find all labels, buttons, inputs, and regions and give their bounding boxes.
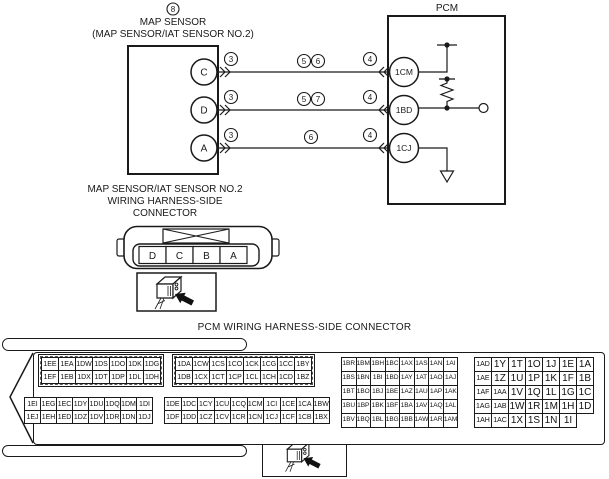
pin-1DX: 1DX — [76, 371, 93, 384]
pin-1CF: 1CF — [280, 411, 297, 424]
pin-1CO: 1CO — [227, 358, 244, 371]
ref-number: 3 — [229, 55, 234, 64]
ref-number: 4 — [368, 93, 373, 102]
pin-1BY: 1BY — [295, 358, 312, 371]
pin-1EC: 1EC — [57, 398, 73, 411]
sensor-subtitle: (MAP SENSOR/IAT SENSOR NO.2) — [92, 29, 254, 40]
pin-1CM: 1CM — [247, 398, 264, 411]
pin-1BS: 1BS — [342, 372, 357, 386]
pin-1CU: 1CU — [214, 398, 231, 411]
pin-1CD: 1CD — [278, 371, 295, 384]
pin-1CR: 1CR — [231, 411, 248, 424]
pin-1CV: 1CV — [214, 411, 231, 424]
pin-1CK: 1CK — [244, 358, 261, 371]
pin-1B: 1B — [577, 372, 594, 386]
pin-1EG: 1EG — [41, 398, 57, 411]
pin-block-2: 1DA1CW1CS1CO1CK1CG1CC1BY1DB1CX1CT1CP1CL1… — [172, 354, 315, 387]
pin-1AN: 1AN — [429, 358, 444, 372]
ref-number: 4 — [368, 55, 373, 64]
pin-1DL: 1DL — [127, 371, 144, 384]
pin-1CN: 1CN — [247, 411, 264, 424]
pin-1AQ: 1AQ — [429, 400, 444, 414]
pin-1AY: 1AY — [400, 372, 415, 386]
pin-1CT: 1CT — [210, 371, 227, 384]
pin-1CB: 1CB — [297, 411, 314, 424]
open-terminal-icon — [479, 104, 488, 113]
pin-1DQ: 1DQ — [105, 398, 121, 411]
pin-1EA: 1EA — [59, 358, 76, 371]
pin-1U: 1U — [509, 372, 526, 386]
pin-1DG: 1DG — [144, 358, 161, 371]
pin-1DC: 1DC — [181, 398, 198, 411]
pin-1BX: 1BX — [313, 411, 330, 424]
pin-1BE: 1BE — [385, 386, 400, 400]
pin-1BC: 1BC — [385, 358, 400, 372]
pin-1AC: 1AC — [492, 414, 509, 428]
sensor-ref-number: 8 — [171, 5, 176, 14]
wire-row-d-1bd: D 1BD 3 5 7 4 — [191, 91, 419, 125]
pin-1F: 1F — [560, 372, 577, 386]
pin-1DN: 1DN — [121, 411, 137, 424]
pin-1Q: 1Q — [526, 386, 543, 400]
pin-1DE: 1DE — [165, 398, 182, 411]
pin-1DK: 1DK — [127, 358, 144, 371]
ref-number: 5 — [302, 57, 307, 66]
pin-1EB: 1EB — [59, 371, 76, 384]
pin-1L: 1L — [543, 386, 560, 400]
pin-1AU: 1AU — [414, 386, 429, 400]
pin-1AS: 1AS — [414, 358, 429, 372]
pin-block-6: 1AD1Y1T1O1J1E1A1AE1Z1U1P1K1F1B1AF1AA1V1Q… — [474, 357, 594, 428]
pin-1ED: 1ED — [57, 411, 73, 424]
pin-1EH: 1EH — [41, 411, 57, 424]
pin-1BU: 1BU — [342, 400, 357, 414]
pin-1J: 1J — [543, 358, 560, 372]
pin-1CJ: 1CJ — [264, 411, 281, 424]
pin-1DD: 1DD — [181, 411, 198, 424]
pin-1DJ: 1DJ — [137, 411, 153, 424]
sensor-terminal-label: A — [201, 144, 208, 155]
pin-1DA: 1DA — [176, 358, 193, 371]
pin-block-3: 1EI1EG1EC1DY1DU1DQ1DM1DI1EJ1EH1ED1DZ1DV1… — [24, 397, 153, 424]
ref-number: 6 — [316, 57, 321, 66]
connector-top-rail — [2, 338, 247, 351]
pin-1BR: 1BR — [342, 358, 357, 372]
pin-1EI: 1EI — [25, 398, 41, 411]
pin-1DB: 1DB — [176, 371, 193, 384]
pin-1N: 1N — [543, 414, 560, 428]
pin-1CC: 1CC — [278, 358, 295, 371]
pin-1AO: 1AO — [429, 372, 444, 386]
pin-1AI: 1AI — [443, 358, 458, 372]
pin-1DF: 1DF — [165, 411, 182, 424]
pin-1AR: 1AR — [429, 414, 444, 428]
ref-number: 7 — [316, 95, 321, 104]
pin-1AK: 1AK — [443, 386, 458, 400]
pin-1M: 1M — [543, 400, 560, 414]
pin-grid: 1EE1EA1DW1DS1DO1DK1DG1EF1EB1DX1DT1DP1DL1… — [41, 357, 161, 384]
pin-1AA: 1AA — [492, 386, 509, 400]
pin-1X: 1X — [509, 414, 526, 428]
pcm-terminal-label: 1CM — [395, 67, 413, 77]
pin-grid: 1EI1EG1EC1DY1DU1DQ1DM1DI1EJ1EH1ED1DZ1DV1… — [24, 397, 153, 424]
pin-block-4: 1DE1DC1CY1CU1CQ1CM1CI1CE1CA1BW1DF1DD1CZ1… — [164, 397, 330, 424]
pin-1G: 1G — [560, 386, 577, 400]
ref-number: 4 — [368, 131, 373, 140]
pin-1DS: 1DS — [93, 358, 110, 371]
pin-1CP: 1CP — [227, 371, 244, 384]
pin-1CI: 1CI — [264, 398, 281, 411]
pcm-terminal-label: 1BD — [396, 105, 413, 115]
pin-1DW: 1DW — [76, 358, 93, 371]
pin-1AM: 1AM — [443, 414, 458, 428]
pin-1R: 1R — [526, 400, 543, 414]
pcm-title: PCM — [436, 3, 458, 14]
pin-1AP: 1AP — [429, 386, 444, 400]
pin-1DY: 1DY — [73, 398, 89, 411]
pin-1AB: 1AB — [492, 400, 509, 414]
pin-1H: 1H — [560, 400, 577, 414]
pin-1AJ: 1AJ — [443, 372, 458, 386]
pin-1O: 1O — [526, 358, 543, 372]
wire-row-a-1cj: A 1CJ 3 6 4 — [191, 129, 419, 163]
pin-1T: 1T — [509, 358, 526, 372]
pin-block-5: 1BR1BM1BH1BC1AX1AS1AN1AI1BS1BN1BI1BD1AY1… — [341, 357, 458, 428]
connector-3d-icon — [286, 445, 321, 472]
sensor-terminal-label: C — [200, 68, 207, 79]
pin-1BB: 1BB — [400, 414, 415, 428]
icon-frame — [263, 445, 343, 474]
pin-1D: 1D — [577, 400, 594, 414]
pin-1BD: 1BD — [385, 372, 400, 386]
pin-1AZ: 1AZ — [400, 386, 415, 400]
pin-1BT: 1BT — [342, 386, 357, 400]
sensor-title: MAP SENSOR — [140, 17, 207, 28]
pin-1CQ: 1CQ — [231, 398, 248, 411]
pin-1DV: 1DV — [89, 411, 105, 424]
sensor-connector-label-2: WIRING HARNESS-SIDE — [107, 196, 222, 207]
pin-1AL: 1AL — [443, 400, 458, 414]
pin-1CH: 1CH — [261, 371, 278, 384]
pin-1BA: 1BA — [400, 400, 415, 414]
pin-1CL: 1CL — [244, 371, 261, 384]
pin-1BM: 1BM — [356, 358, 371, 372]
pin-1S: 1S — [526, 414, 543, 428]
wire-row-c-1cm: C 1CM 3 5 6 4 — [191, 53, 419, 87]
pin-1CG: 1CG — [261, 358, 278, 371]
sensor-terminal-label: D — [200, 106, 207, 117]
pcm-connector-icon-box — [262, 444, 347, 477]
pin-1BV: 1BV — [342, 414, 357, 428]
junction-dot — [444, 42, 449, 47]
pin-1AE: 1AE — [475, 372, 492, 386]
pin-1BN: 1BN — [356, 372, 371, 386]
pin-1I: 1I — [560, 414, 577, 428]
pin-1CZ: 1CZ — [198, 411, 215, 424]
pin-1CE: 1CE — [280, 398, 297, 411]
pin-1AV: 1AV — [414, 400, 429, 414]
pin-1V: 1V — [509, 386, 526, 400]
pin-1K: 1K — [543, 372, 560, 386]
pin-1DP: 1DP — [110, 371, 127, 384]
pin-1AX: 1AX — [400, 358, 415, 372]
pin-1DO: 1DO — [110, 358, 127, 371]
pcm-terminal-label: 1CJ — [396, 143, 411, 153]
connector-bottom-rail — [2, 445, 247, 457]
pin-1AH: 1AH — [475, 414, 492, 428]
pin-1EE: 1EE — [42, 358, 59, 371]
sensor-connector-label-1: MAP SENSOR/IAT SENSOR NO.2 — [87, 184, 242, 195]
pin-1DU: 1DU — [89, 398, 105, 411]
pin-1A: 1A — [577, 358, 594, 372]
pin-label: A — [230, 251, 237, 262]
pin-1BF: 1BF — [385, 400, 400, 414]
pin-label: B — [203, 251, 210, 262]
pin-1BH: 1BH — [371, 358, 386, 372]
pin-1C: 1C — [577, 386, 594, 400]
pin-1AW: 1AW — [414, 414, 429, 428]
pin-1BP: 1BP — [356, 400, 371, 414]
pin-1W: 1W — [509, 400, 526, 414]
pin-1Y: 1Y — [492, 358, 509, 372]
ref-number: 3 — [229, 93, 234, 102]
pin-1BW: 1BW — [313, 398, 330, 411]
pin-1EF: 1EF — [42, 371, 59, 384]
pin-1EJ: 1EJ — [25, 411, 41, 424]
pin-grid: 1DA1CW1CS1CO1CK1CG1CC1BY1DB1CX1CT1CP1CL1… — [175, 357, 312, 384]
pin-1E: 1E — [560, 358, 577, 372]
pin-1BI: 1BI — [371, 372, 386, 386]
pin-label: D — [149, 251, 156, 262]
pin-1AD: 1AD — [475, 358, 492, 372]
pin-1DM: 1DM — [121, 398, 137, 411]
wiring-diagram-page: { "colors": { "line": "#1a1a1a", "backgr… — [0, 0, 609, 478]
pin-1AG: 1AG — [475, 400, 492, 414]
pin-1CS: 1CS — [210, 358, 227, 371]
sensor-connector-label-3: CONNECTOR — [133, 208, 197, 219]
pin-1BJ: 1BJ — [371, 386, 386, 400]
pcm-connector-title: PCM WIRING HARNESS-SIDE CONNECTOR — [0, 322, 609, 333]
sensor-connector-drawing: D C B A — [117, 227, 279, 269]
pin-1BO: 1BO — [356, 386, 371, 400]
pin-1BQ: 1BQ — [356, 414, 371, 428]
pin-1BL: 1BL — [371, 414, 386, 428]
pin-1CX: 1CX — [193, 371, 210, 384]
pin-1BG: 1BG — [385, 414, 400, 428]
pin-1P: 1P — [526, 372, 543, 386]
pin-1CA: 1CA — [297, 398, 314, 411]
pin-grid: 1AD1Y1T1O1J1E1A1AE1Z1U1P1K1F1B1AF1AA1V1Q… — [474, 357, 594, 428]
pin-grid: 1DE1DC1CY1CU1CQ1CM1CI1CE1CA1BW1DF1DD1CZ1… — [164, 397, 330, 424]
pin-1CY: 1CY — [198, 398, 215, 411]
pin-1CW: 1CW — [193, 358, 210, 371]
pin-grid: 1BR1BM1BH1BC1AX1AS1AN1AI1BS1BN1BI1BD1AY1… — [341, 357, 458, 428]
pin-1DZ: 1DZ — [73, 411, 89, 424]
pin-1Z: 1Z — [492, 372, 509, 386]
sensor-connector-icon-box — [137, 273, 216, 311]
pin-1DI: 1DI — [137, 398, 153, 411]
pin-1DT: 1DT — [93, 371, 110, 384]
ref-number: 5 — [302, 95, 307, 104]
pin-1BZ: 1BZ — [295, 371, 312, 384]
pin-block-1: 1EE1EA1DW1DS1DO1DK1DG1EF1EB1DX1DT1DP1DL1… — [38, 354, 164, 387]
pin-1DH: 1DH — [144, 371, 161, 384]
pin-label: C — [176, 251, 183, 262]
pin-1AT: 1AT — [414, 372, 429, 386]
pin-1BK: 1BK — [371, 400, 386, 414]
ref-number: 3 — [229, 131, 234, 140]
schematic-area: 8 MAP SENSOR (MAP SENSOR/IAT SENSOR NO.2… — [0, 0, 609, 322]
ref-number: 6 — [309, 133, 314, 142]
pin-1AF: 1AF — [475, 386, 492, 400]
pin-1DR: 1DR — [105, 411, 121, 424]
